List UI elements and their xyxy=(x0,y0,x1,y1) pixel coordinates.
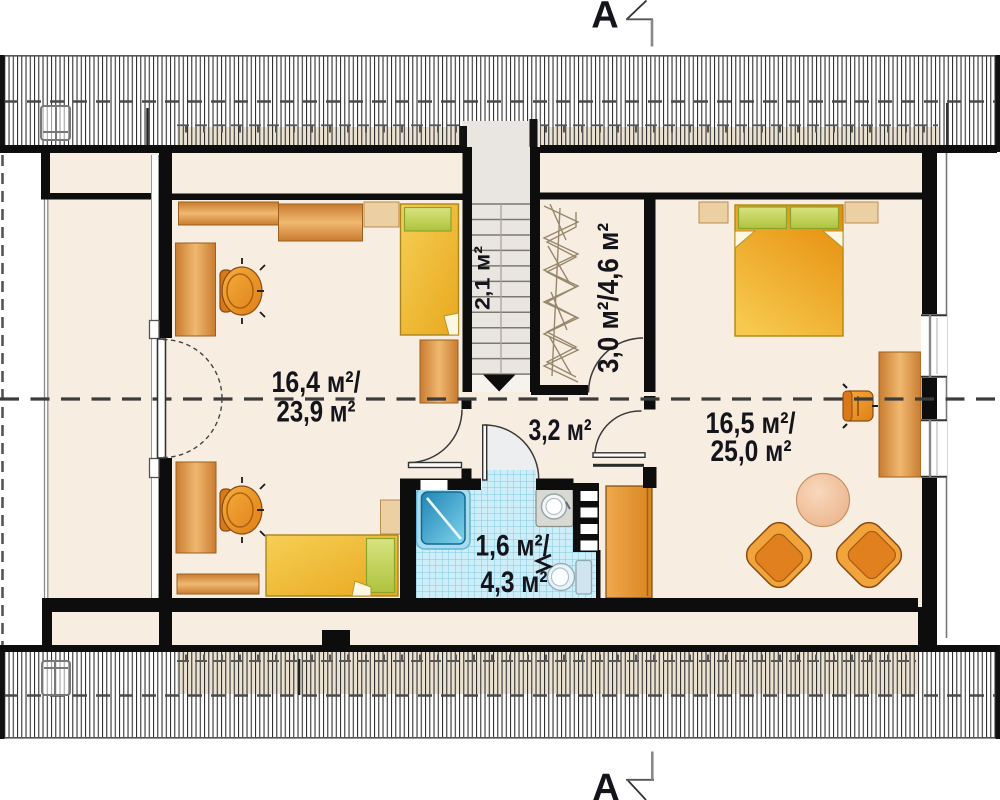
svg-text:A: A xyxy=(591,0,618,37)
svg-text:3,0 м²/4,6 м²: 3,0 м²/4,6 м² xyxy=(593,223,625,373)
svg-text:3,2 м²: 3,2 м² xyxy=(529,414,592,447)
svg-text:A: A xyxy=(592,767,619,800)
svg-text:2,1 м²: 2,1 м² xyxy=(471,246,495,310)
svg-text:23,9 м²: 23,9 м² xyxy=(277,396,356,429)
svg-text:1,6 м²/: 1,6 м²/ xyxy=(476,530,551,563)
svg-text:16,4 м²/: 16,4 м²/ xyxy=(272,366,362,399)
svg-text:25,0 м²: 25,0 м² xyxy=(711,435,792,468)
